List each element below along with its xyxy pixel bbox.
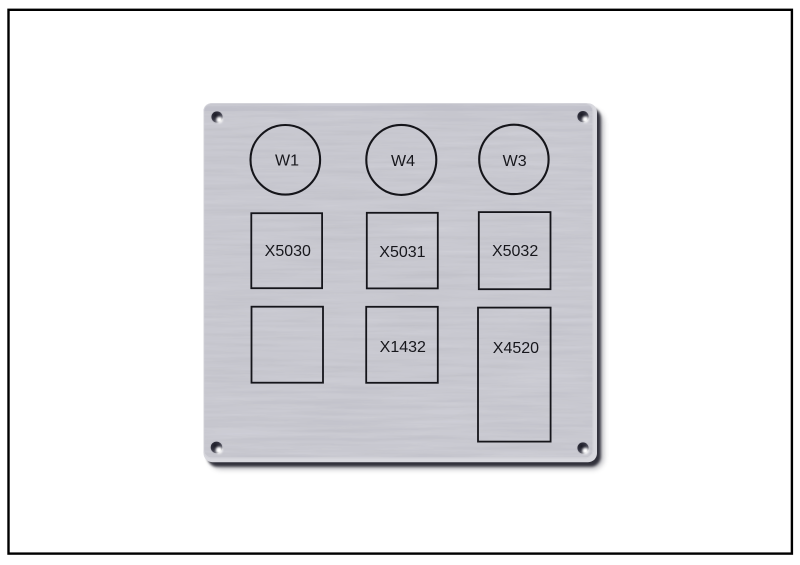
svg-text:X1432: X1432: [380, 339, 426, 356]
svg-text:X5032: X5032: [492, 243, 538, 260]
svg-text:W3: W3: [503, 153, 527, 170]
svg-text:X5031: X5031: [379, 244, 425, 261]
svg-text:W4: W4: [391, 153, 415, 170]
svg-text:X4520: X4520: [493, 340, 539, 357]
svg-text:X5030: X5030: [265, 243, 311, 260]
svg-text:W1: W1: [275, 153, 299, 170]
